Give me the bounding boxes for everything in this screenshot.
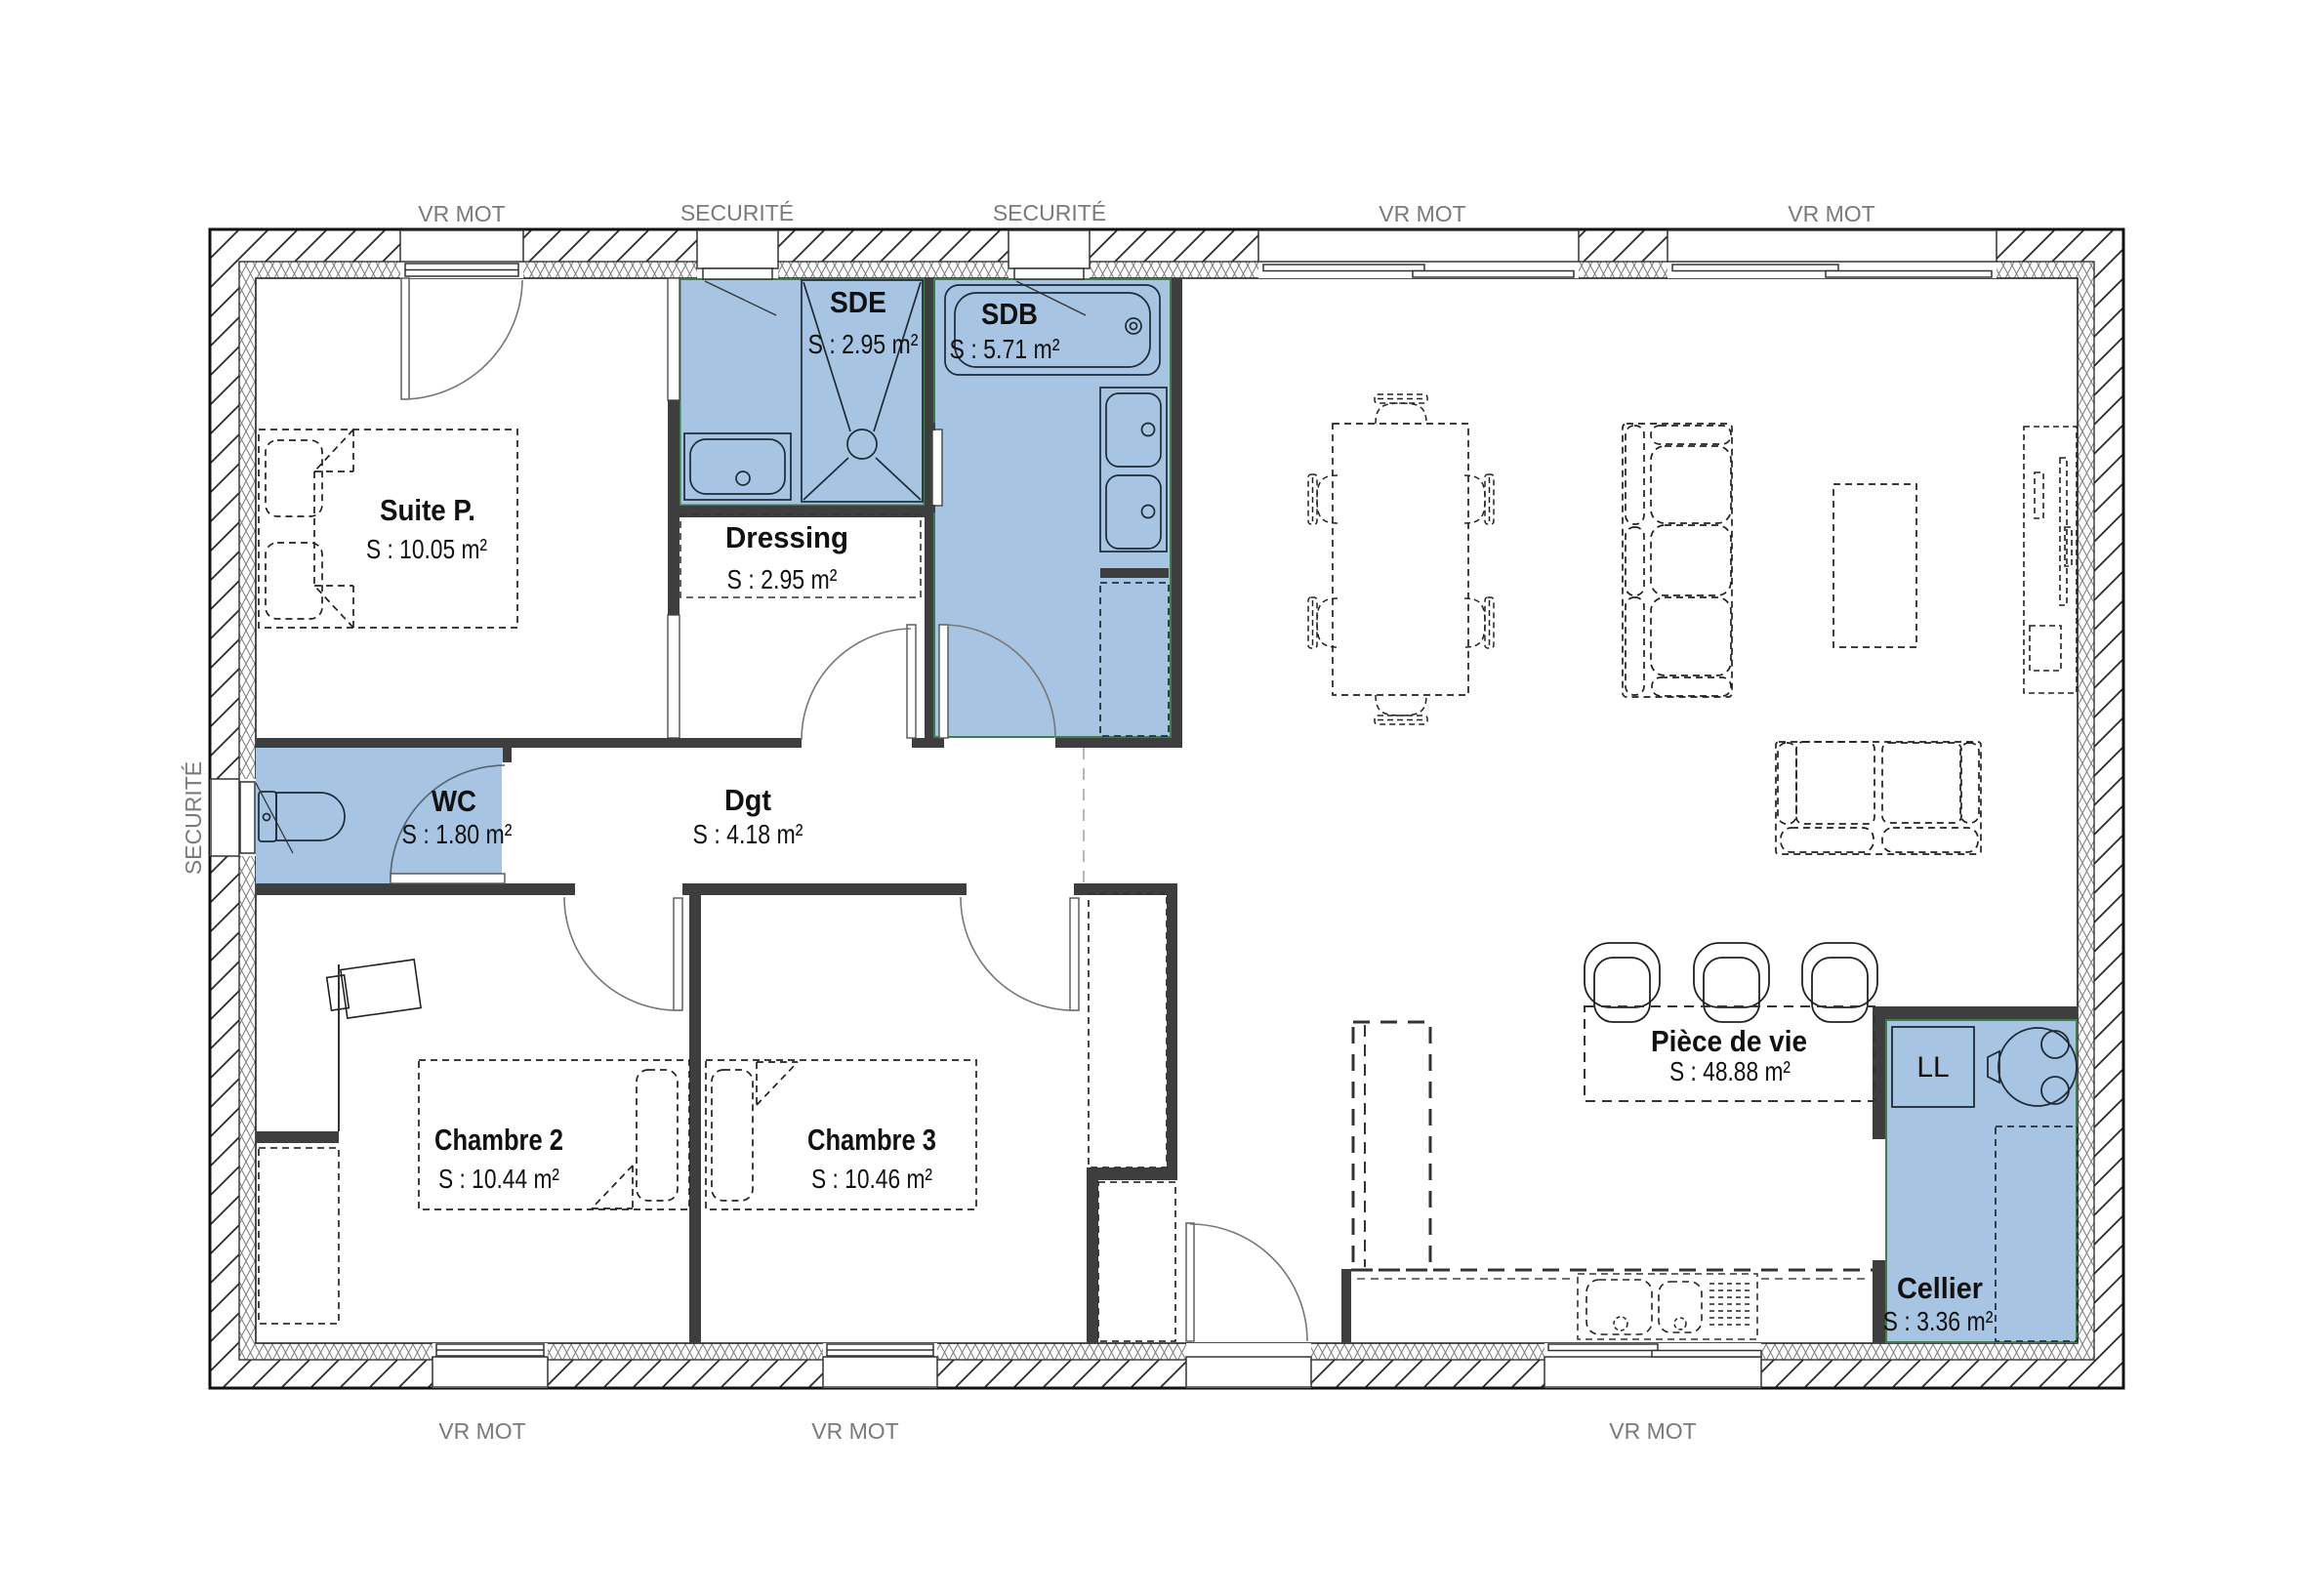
svg-text:S : 10.05 m²: S : 10.05 m² [366, 534, 487, 564]
svg-text:VR MOT: VR MOT [438, 1418, 525, 1444]
svg-text:VR MOT: VR MOT [1788, 201, 1874, 226]
svg-text:S : 5.71 m²: S : 5.71 m² [950, 334, 1060, 364]
svg-text:VR MOT: VR MOT [1379, 201, 1465, 226]
svg-text:Dressing: Dressing [725, 520, 848, 554]
svg-text:Dgt: Dgt [724, 783, 771, 817]
svg-text:LL: LL [1916, 1051, 1949, 1084]
svg-text:S : 3.36 m²: S : 3.36 m² [1883, 1306, 1994, 1336]
svg-text:S : 10.44 m²: S : 10.44 m² [438, 1164, 559, 1194]
svg-text:Cellier: Cellier [1897, 1271, 1983, 1305]
svg-text:S : 1.80 m²: S : 1.80 m² [402, 819, 513, 849]
svg-text:SECURITÉ: SECURITÉ [680, 200, 794, 225]
svg-text:SDE: SDE [830, 285, 886, 319]
svg-text:VR MOT: VR MOT [811, 1418, 898, 1444]
svg-text:WC: WC [432, 784, 476, 818]
svg-text:SECURITÉ: SECURITÉ [181, 761, 206, 875]
svg-text:S : 2.95 m²: S : 2.95 m² [808, 329, 919, 359]
svg-text:S : 10.46 m²: S : 10.46 m² [811, 1164, 932, 1194]
svg-text:Pièce de vie: Pièce de vie [1651, 1024, 1807, 1058]
svg-text:SDB: SDB [981, 297, 1038, 331]
svg-text:VR MOT: VR MOT [1609, 1418, 1696, 1444]
svg-text:S : 48.88 m²: S : 48.88 m² [1669, 1056, 1791, 1086]
svg-text:S : 2.95 m²: S : 2.95 m² [727, 564, 838, 594]
svg-text:Chambre 2: Chambre 2 [434, 1123, 563, 1157]
svg-text:S : 4.18 m²: S : 4.18 m² [693, 819, 803, 849]
svg-text:Suite P.: Suite P. [380, 493, 475, 527]
svg-text:VR MOT: VR MOT [418, 201, 505, 226]
svg-text:Chambre 3: Chambre 3 [807, 1123, 936, 1157]
svg-text:SECURITÉ: SECURITÉ [993, 200, 1106, 225]
